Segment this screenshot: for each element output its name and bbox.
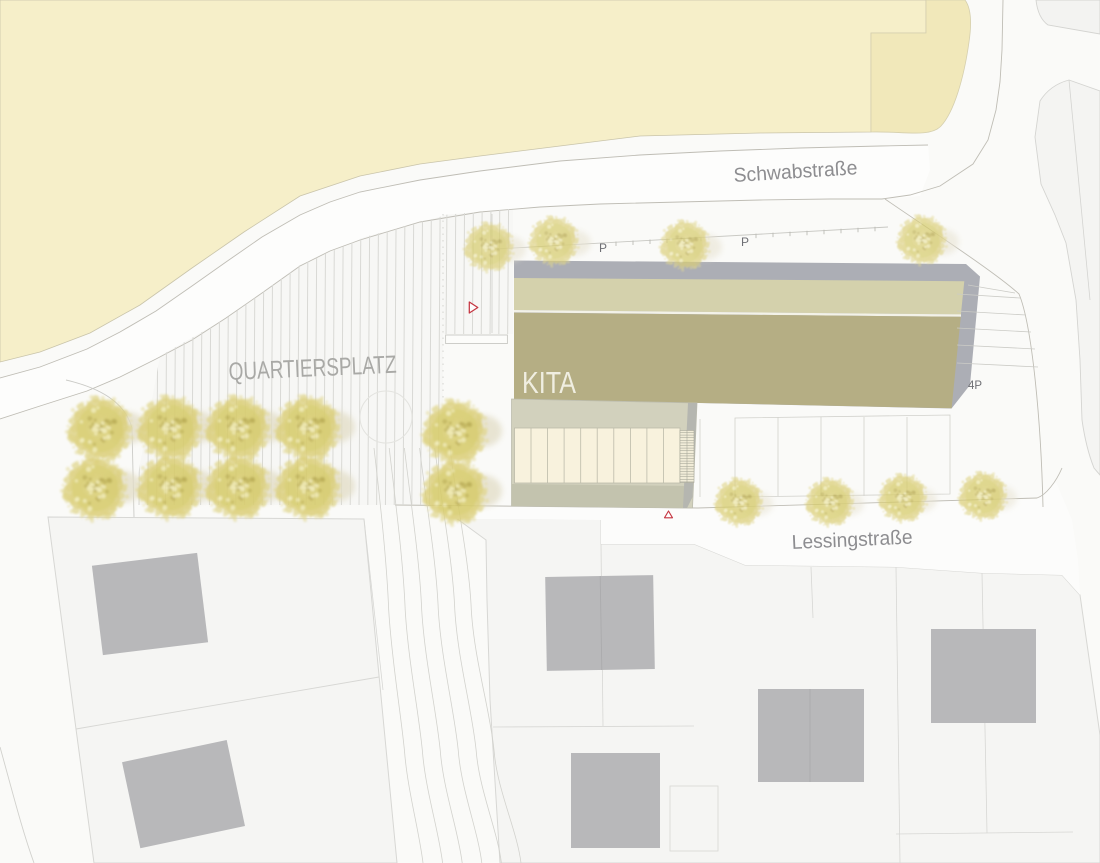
svg-text:KITA: KITA [522, 365, 576, 400]
svg-text:P: P [741, 235, 749, 249]
svg-text:4P: 4P [968, 380, 982, 392]
svg-text:P: P [599, 241, 607, 255]
